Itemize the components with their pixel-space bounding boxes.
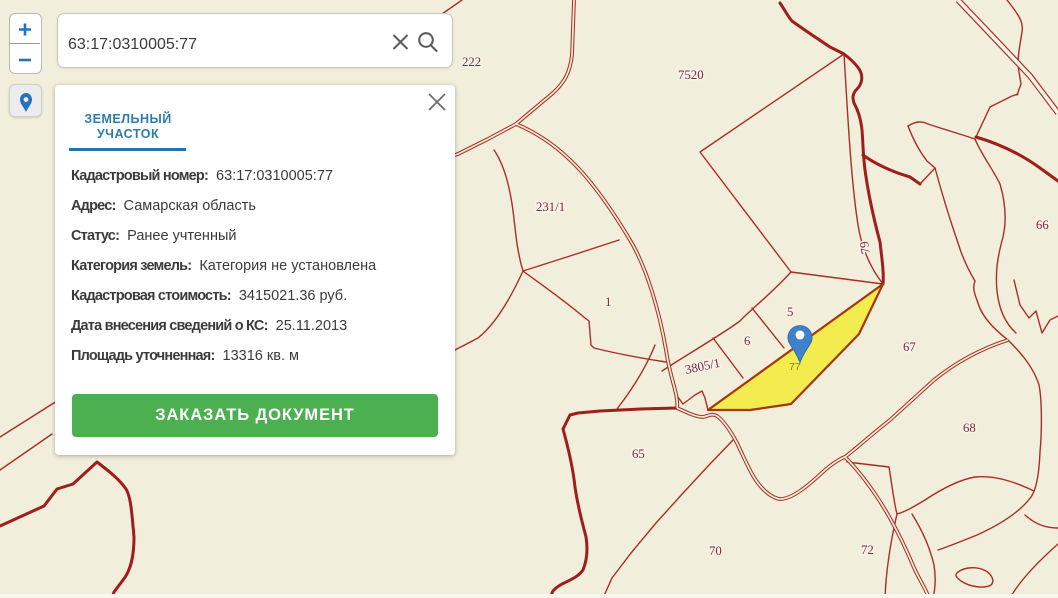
svg-text:77: 77: [789, 361, 801, 373]
svg-text:231/1: 231/1: [536, 200, 565, 214]
svg-text:67: 67: [903, 340, 916, 354]
svg-text:72: 72: [861, 543, 874, 557]
svg-text:70: 70: [709, 544, 722, 558]
svg-text:222: 222: [462, 55, 481, 69]
svg-text:79: 79: [857, 240, 873, 255]
svg-text:68: 68: [963, 421, 976, 435]
svg-text:65: 65: [632, 447, 645, 461]
svg-text:7520: 7520: [678, 68, 704, 82]
svg-text:6: 6: [744, 334, 751, 348]
svg-text:1: 1: [605, 295, 611, 309]
svg-text:5: 5: [787, 305, 793, 319]
svg-text:66: 66: [1036, 218, 1049, 232]
